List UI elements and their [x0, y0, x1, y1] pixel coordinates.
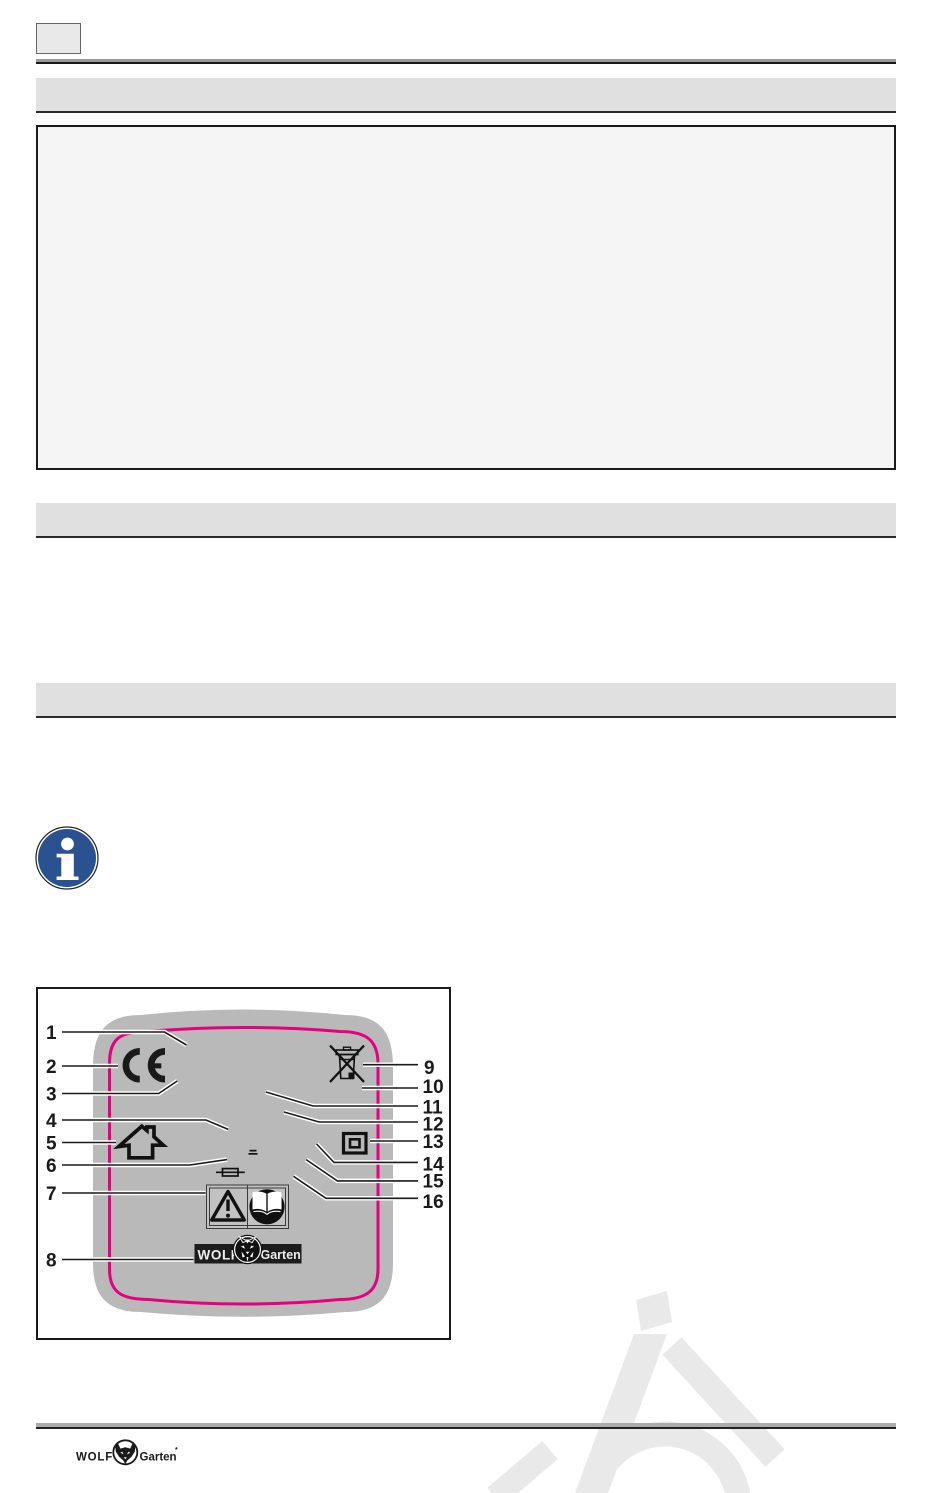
svg-text:WOLF: WOLF: [76, 1452, 113, 1464]
svg-text:9: 9: [424, 1058, 435, 1079]
svg-text:3: 3: [46, 1085, 57, 1106]
svg-text:13: 13: [423, 1132, 444, 1153]
svg-text:16: 16: [423, 1192, 444, 1213]
svg-text:5: 5: [46, 1134, 57, 1155]
svg-text:7: 7: [46, 1184, 57, 1205]
svg-text:4: 4: [46, 1111, 57, 1132]
svg-text:2: 2: [46, 1057, 57, 1078]
svg-text:8: 8: [46, 1251, 57, 1272]
svg-text:6: 6: [46, 1156, 57, 1177]
svg-text:15: 15: [423, 1172, 445, 1193]
svg-text:1: 1: [46, 1023, 57, 1044]
svg-text:10: 10: [423, 1077, 444, 1098]
svg-text:Garten: Garten: [140, 1452, 177, 1464]
svg-text:*: *: [175, 1447, 178, 1454]
svg-text:Garten: Garten: [261, 1248, 301, 1262]
